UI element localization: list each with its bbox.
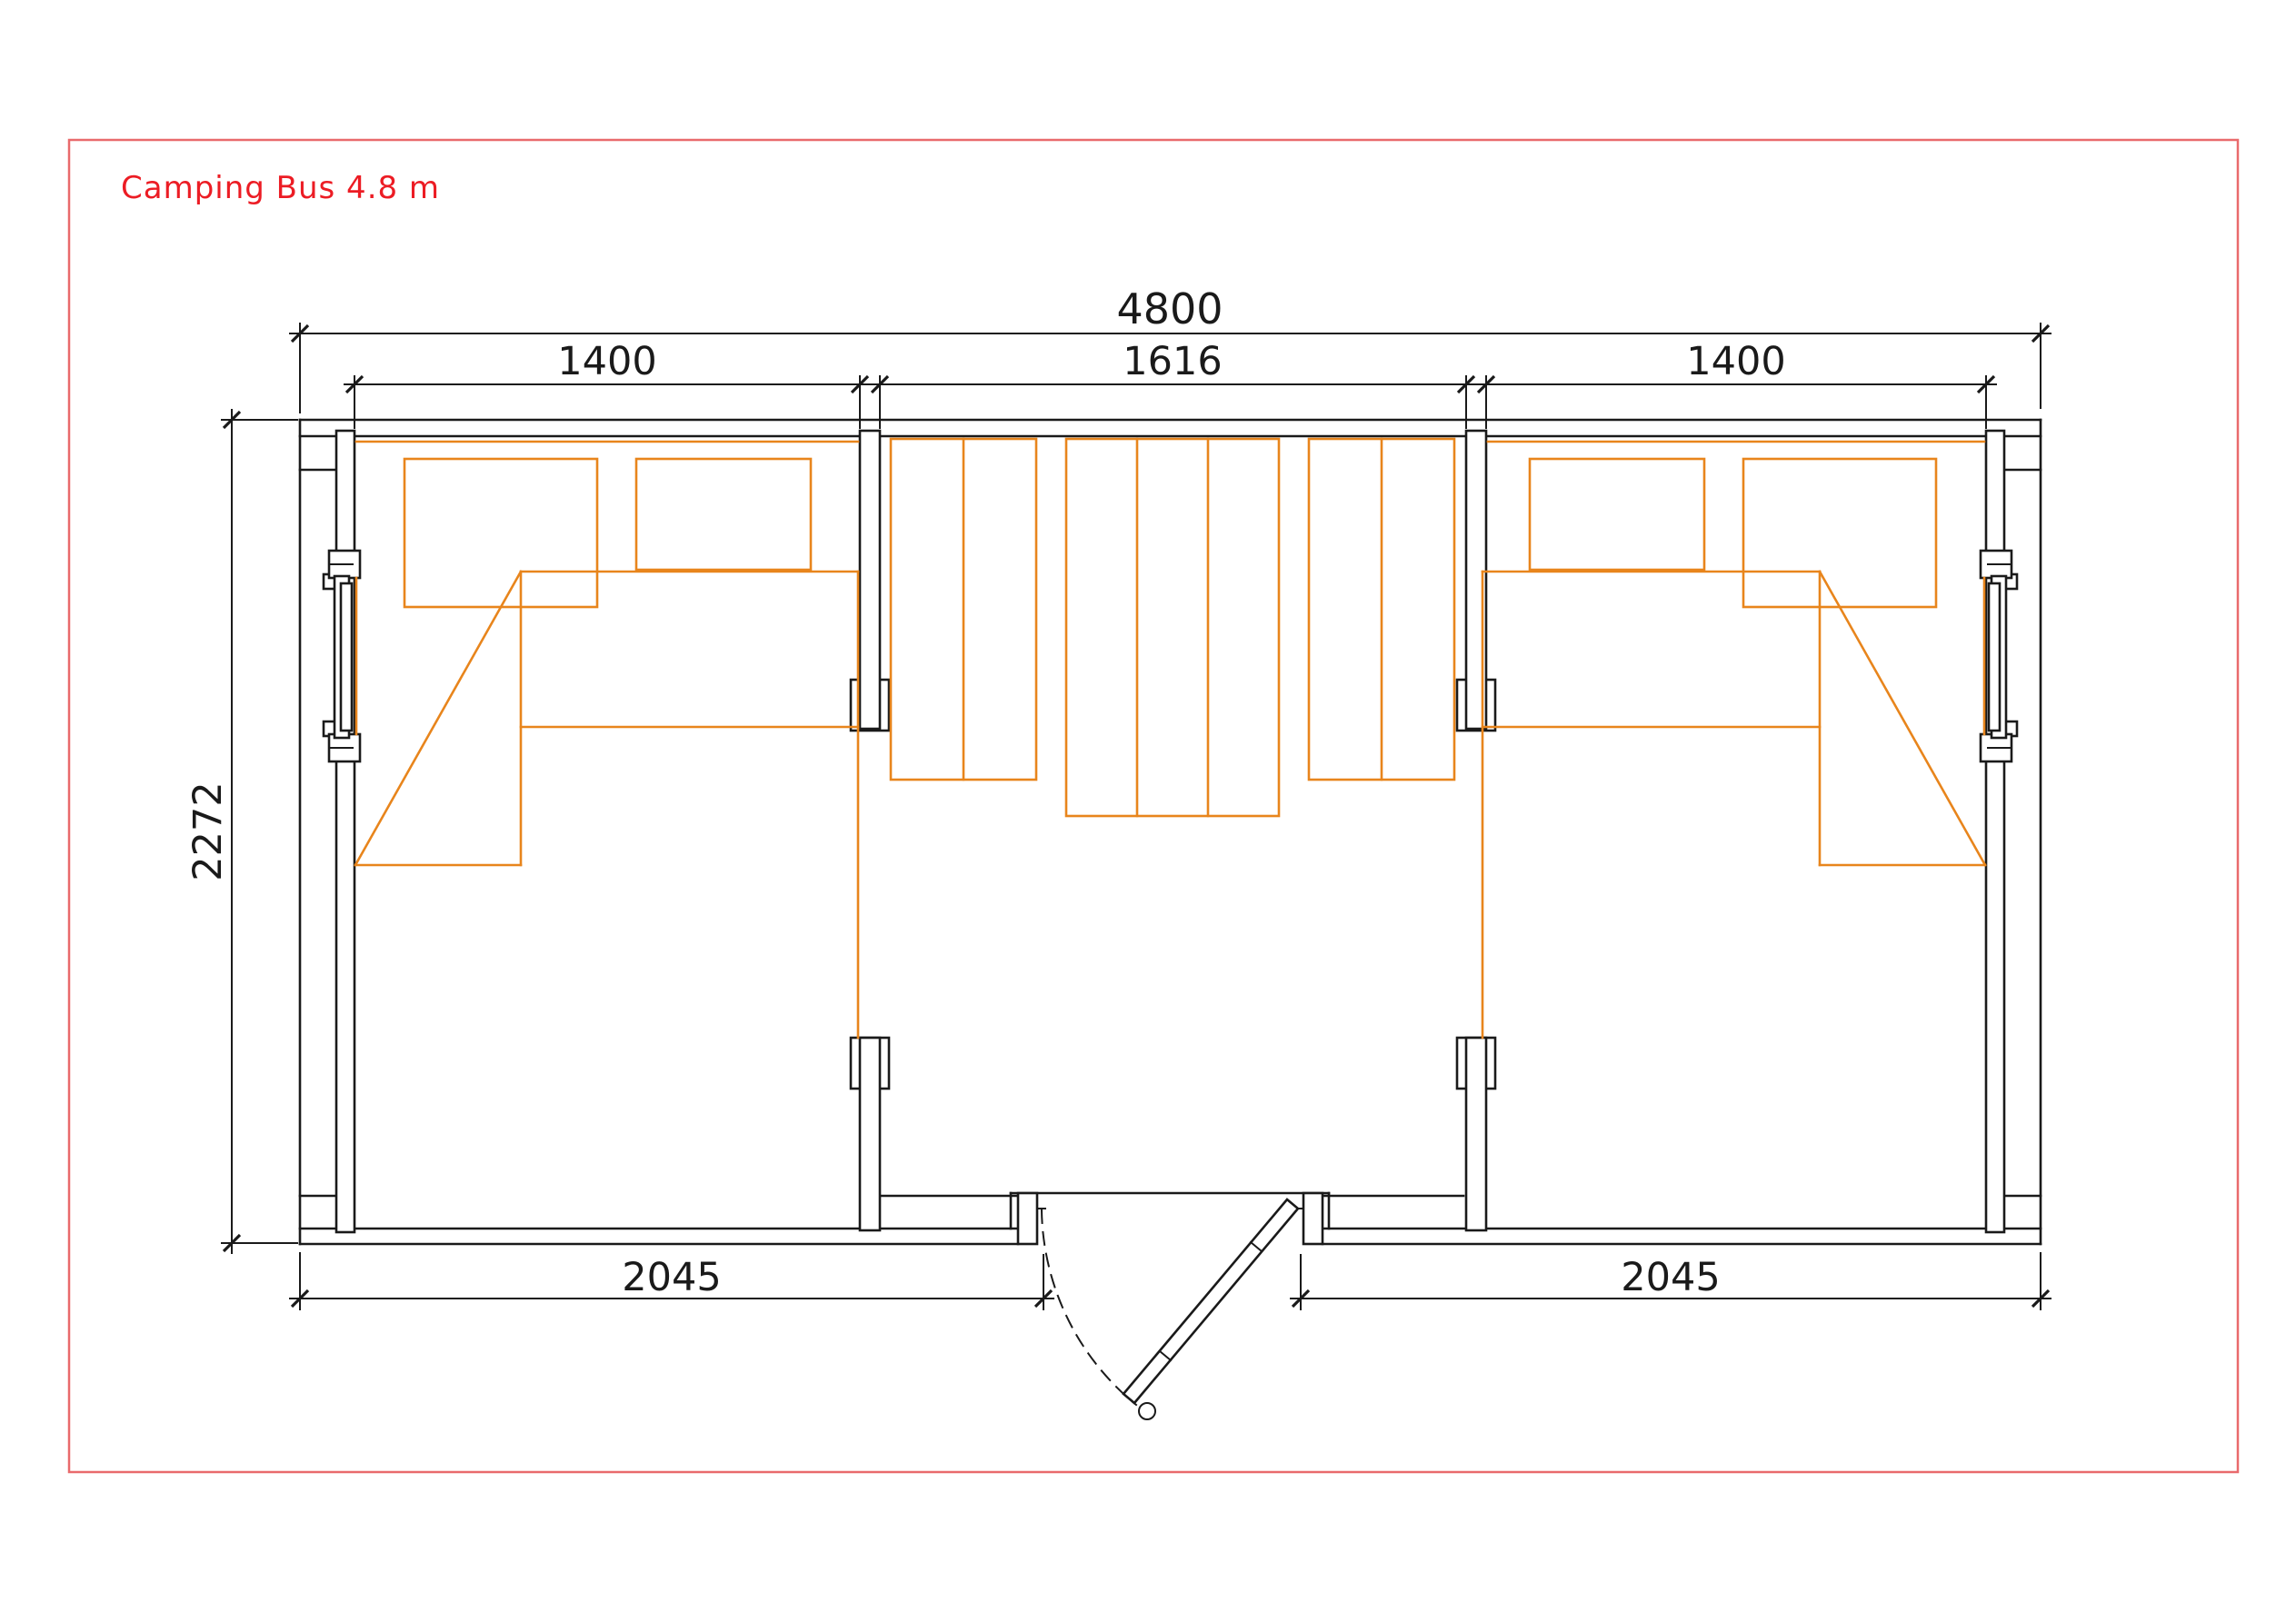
window-pane-inner [1989, 583, 2000, 731]
right-bed-area [1482, 459, 1985, 1038]
center-left-post [860, 431, 880, 729]
window-pane-inner [341, 583, 352, 731]
door-swing-arc [1042, 1210, 1136, 1405]
dim-label-center-section: 1616 [1123, 339, 1222, 384]
dim-bottom-right: 2045 [1290, 1252, 2051, 1310]
lower-left-post [860, 1038, 880, 1230]
dim-label-bottom-left: 2045 [622, 1255, 721, 1300]
pillow [1530, 459, 1704, 570]
entry-door [1011, 1193, 1329, 1419]
bus-walls [300, 420, 2041, 1244]
drawing-title: Camping Bus 4.8 m [121, 170, 440, 206]
structural-posts [336, 431, 2004, 1232]
dim-label-right-section: 1400 [1686, 339, 1785, 384]
dim-label-bottom-right: 2045 [1621, 1255, 1720, 1300]
door-jamb-left [1018, 1193, 1037, 1244]
pillow [636, 459, 811, 570]
cabinet-group [1066, 439, 1279, 816]
dim-section-widths: 1400 1616 1400 [344, 339, 1997, 429]
drawing-page: Camping Bus 4.8 m [0, 0, 2296, 1622]
lower-right-post [1466, 1038, 1486, 1230]
door-leaf [1123, 1199, 1298, 1403]
pillow [404, 459, 597, 607]
left-bed-area [355, 459, 858, 1038]
door-handle-icon [1139, 1403, 1155, 1419]
dim-label-left-section: 1400 [557, 339, 656, 384]
dim-depth: 2272 [185, 409, 298, 1254]
dim-label-depth: 2272 [185, 781, 231, 881]
door-jamb-right [1303, 1193, 1323, 1244]
bed-fold-diagonal [355, 572, 521, 865]
center-cabinets [891, 439, 1454, 816]
pillow [1743, 459, 1936, 607]
dim-bottom-left: 2045 [289, 1252, 1054, 1310]
floorplan-canvas: Camping Bus 4.8 m [0, 0, 2296, 1622]
furniture [355, 439, 1985, 1038]
dim-label-overall-width: 4800 [1116, 284, 1223, 333]
bed-fold-diagonal [1820, 572, 1985, 865]
